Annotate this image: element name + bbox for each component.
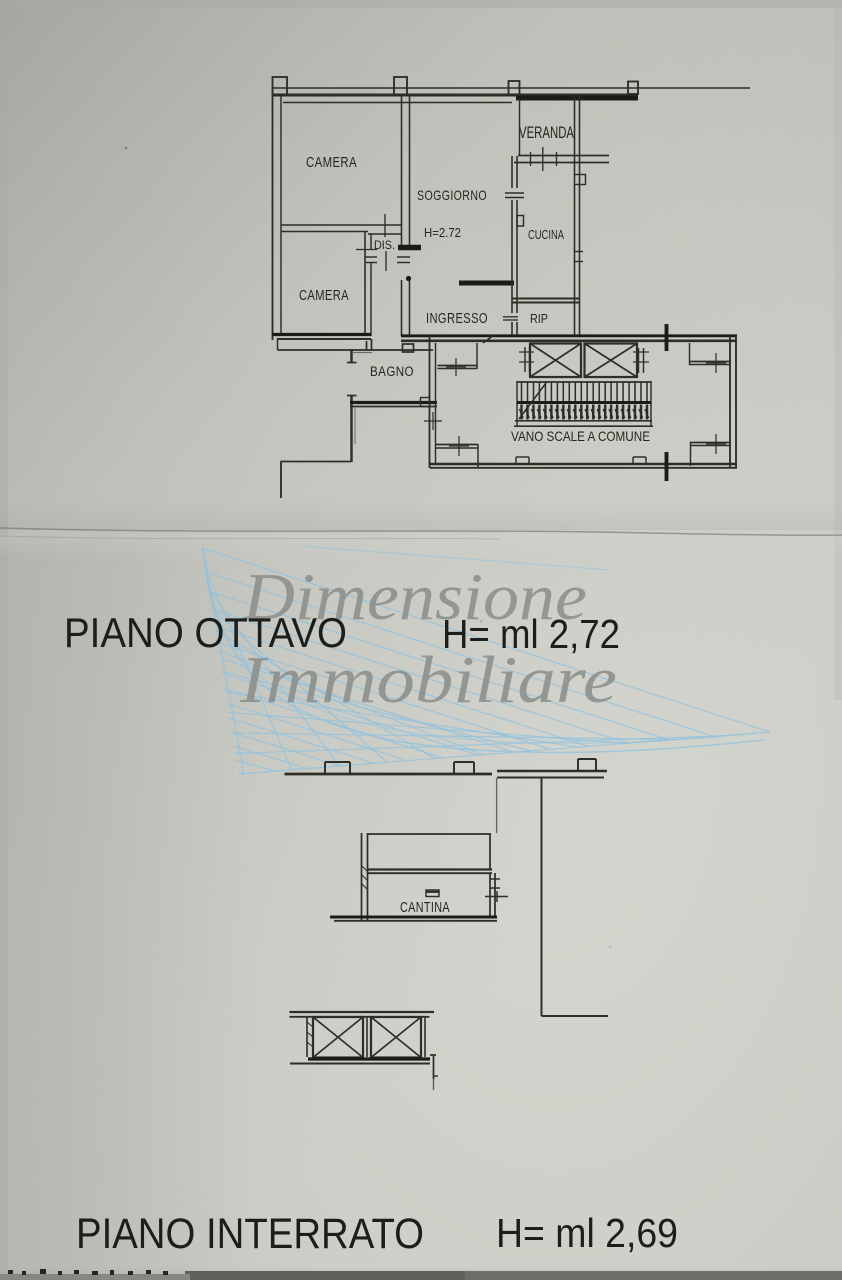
svg-text:CAMERA: CAMERA	[306, 154, 357, 171]
svg-text:PIANO OTTAVO: PIANO OTTAVO	[64, 609, 347, 656]
svg-text:H= ml 2,69: H= ml 2,69	[496, 1210, 678, 1256]
svg-text:VANO SCALE A COMUNE: VANO SCALE A COMUNE	[511, 428, 650, 444]
svg-text:CUCINA: CUCINA	[528, 227, 564, 242]
svg-text:RIP: RIP	[530, 312, 548, 326]
svg-text:DIS.: DIS.	[374, 240, 395, 252]
svg-text:VERANDA: VERANDA	[519, 123, 574, 142]
svg-text:SOGGIORNO: SOGGIORNO	[417, 187, 487, 203]
svg-text:PIANO INTERRATO: PIANO INTERRATO	[76, 1210, 424, 1258]
svg-text:H= ml 2,72: H= ml 2,72	[442, 611, 620, 657]
svg-text:CANTINA: CANTINA	[400, 899, 450, 916]
svg-text:INGRESSO: INGRESSO	[426, 311, 488, 327]
svg-text:CAMERA: CAMERA	[299, 287, 349, 304]
svg-text:H=2.72: H=2.72	[424, 226, 461, 240]
svg-text:BAGNO: BAGNO	[370, 364, 414, 379]
